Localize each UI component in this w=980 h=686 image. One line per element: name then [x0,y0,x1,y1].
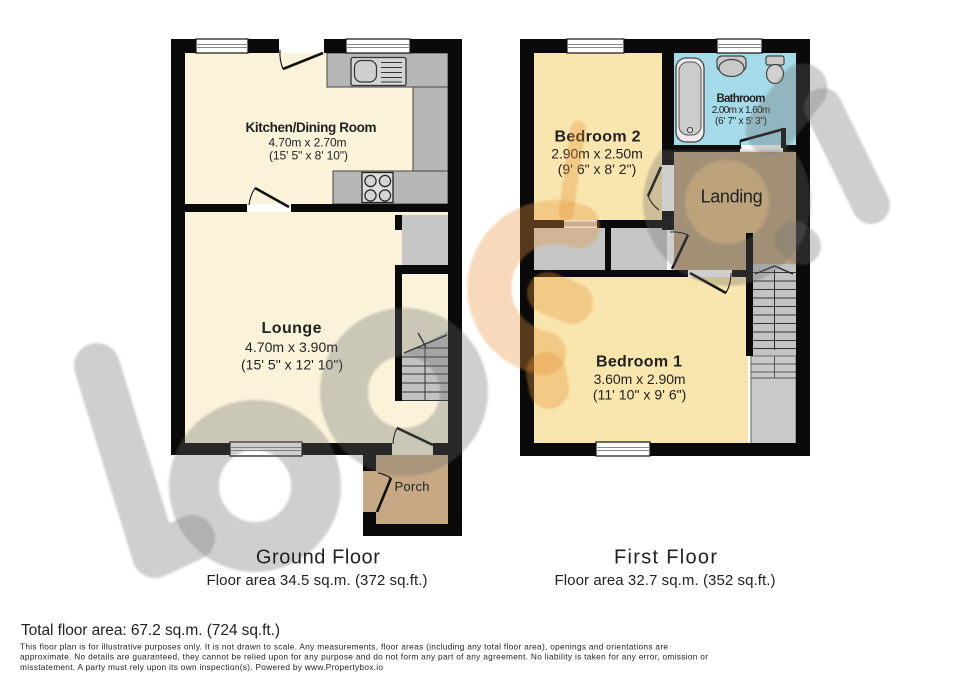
svg-text:4.70m x 3.90m: 4.70m x 3.90m [245,339,338,355]
svg-text:approximate. No details are gu: approximate. No details are guaranteed, … [20,652,708,662]
svg-text:Floor area 34.5 sq.m. (372 sq.: Floor area 34.5 sq.m. (372 sq.ft.) [207,572,428,589]
svg-text:Ground Floor: Ground Floor [256,547,380,569]
svg-text:First Floor: First Floor [614,547,717,569]
svg-text:This floor plan is for illustr: This floor plan is for illustrative purp… [20,642,668,652]
svg-text:4.70m x 2.70m: 4.70m x 2.70m [269,136,347,150]
svg-text:Bedroom 1: Bedroom 1 [596,354,682,371]
svg-text:Kitchen/Dining Room: Kitchen/Dining Room [246,120,377,135]
svg-text:Bedroom 2: Bedroom 2 [555,129,641,146]
svg-text:3.60m x 2.90m: 3.60m x 2.90m [594,371,686,387]
svg-text:Lounge: Lounge [262,320,322,337]
svg-text:misstatement. A party must rel: misstatement. A party must rely upon its… [20,662,383,672]
svg-text:Landing: Landing [701,187,763,207]
svg-text:2.90m x 2.50m: 2.90m x 2.50m [551,146,643,162]
svg-text:(15' 5" x 8' 10"): (15' 5" x 8' 10") [269,149,348,163]
svg-text:Floor area 32.7 sq.m. (352 sq.: Floor area 32.7 sq.m. (352 sq.ft.) [555,572,776,589]
svg-text:Bathroom: Bathroom [717,93,766,105]
svg-text:(11' 10" x 9' 6"): (11' 10" x 9' 6") [593,387,687,403]
svg-text:Total floor area: 67.2 sq.m. (: Total floor area: 67.2 sq.m. (724 sq.ft.… [21,622,280,639]
svg-text:Porch: Porch [395,479,430,494]
